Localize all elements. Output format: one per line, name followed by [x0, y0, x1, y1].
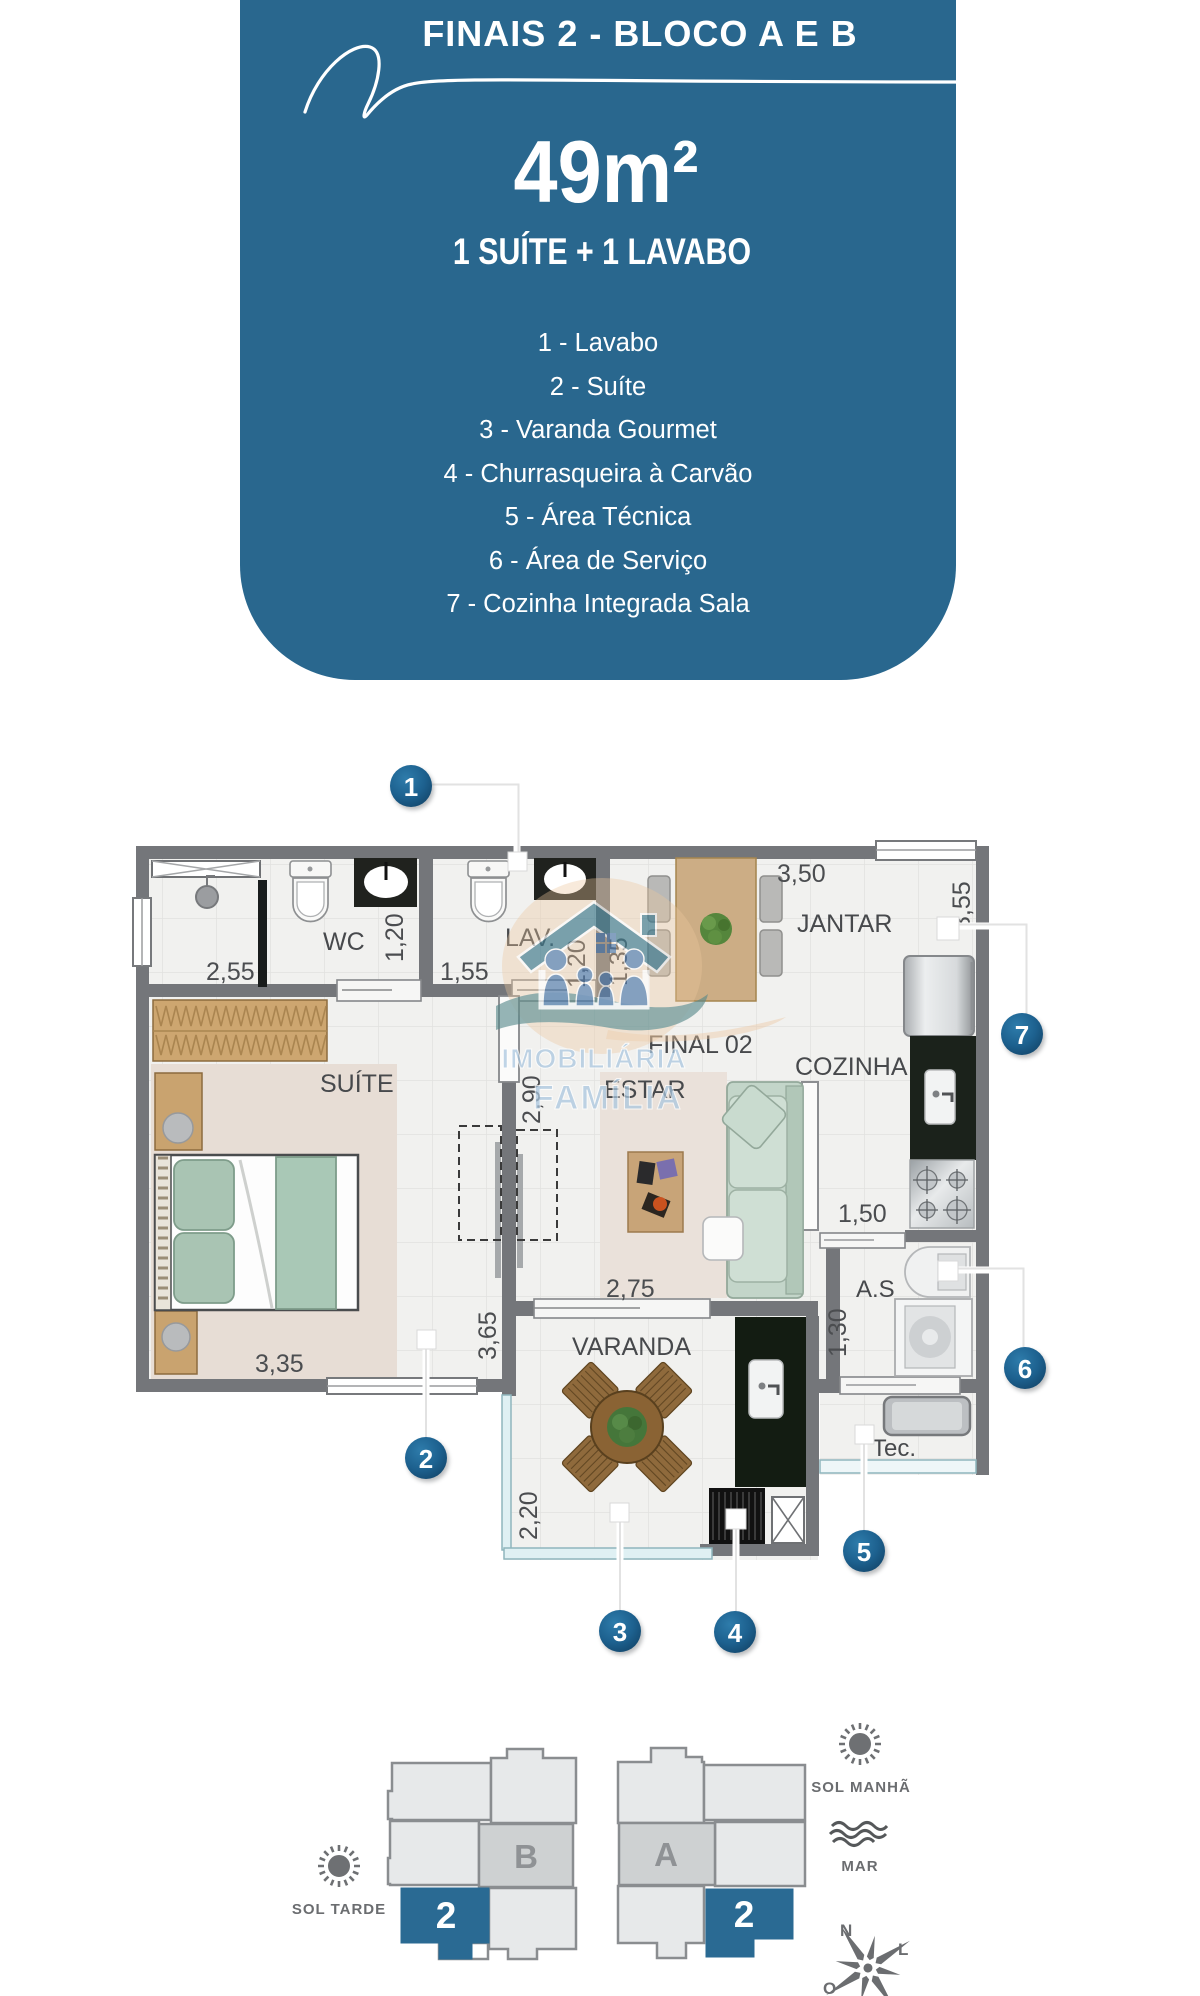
svg-text:IMOBILIÁRIA: IMOBILIÁRIA	[501, 1043, 686, 1074]
svg-text:SOL MANHÃ: SOL MANHÃ	[811, 1778, 911, 1796]
svg-text:3,35: 3,35	[255, 1350, 304, 1378]
svg-text:4: 4	[728, 1618, 743, 1648]
svg-text:COZINHA: COZINHA	[795, 1053, 908, 1081]
svg-text:1,20: 1,20	[381, 913, 409, 962]
svg-text:JANTAR: JANTAR	[797, 910, 892, 938]
svg-text:SUÍTE: SUÍTE	[320, 1069, 394, 1098]
svg-text:Tec.: Tec.	[872, 1435, 916, 1462]
svg-text:1,55: 1,55	[440, 958, 489, 986]
svg-text:L: L	[898, 1940, 908, 1959]
svg-text:2: 2	[436, 1895, 457, 1936]
svg-text:FAMÍLIA: FAMÍLIA	[533, 1079, 683, 1117]
svg-text:5: 5	[857, 1537, 871, 1567]
svg-text:VARANDA: VARANDA	[572, 1333, 691, 1361]
svg-text:3: 3	[613, 1617, 627, 1647]
svg-text:B: B	[514, 1838, 538, 1875]
svg-text:SOL TARDE: SOL TARDE	[292, 1901, 386, 1918]
svg-text:MAR: MAR	[841, 1858, 878, 1875]
svg-text:6: 6	[1018, 1354, 1032, 1384]
svg-text:1,30: 1,30	[824, 1308, 852, 1357]
svg-text:1,50: 1,50	[838, 1200, 887, 1228]
svg-text:2,55: 2,55	[206, 958, 255, 986]
svg-text:2: 2	[419, 1444, 433, 1474]
svg-text:3,65: 3,65	[474, 1311, 502, 1360]
svg-text:3,50: 3,50	[777, 860, 826, 888]
svg-text:WC: WC	[323, 928, 365, 956]
svg-text:O: O	[823, 1979, 836, 1996]
svg-text:2: 2	[734, 1894, 755, 1935]
svg-text:7: 7	[1015, 1020, 1029, 1050]
svg-text:2,75: 2,75	[606, 1275, 655, 1303]
svg-text:N: N	[840, 1921, 852, 1940]
svg-text:A.S: A.S	[856, 1276, 895, 1303]
svg-text:1: 1	[404, 772, 418, 802]
svg-text:A: A	[654, 1836, 678, 1873]
svg-text:2,20: 2,20	[515, 1491, 543, 1540]
